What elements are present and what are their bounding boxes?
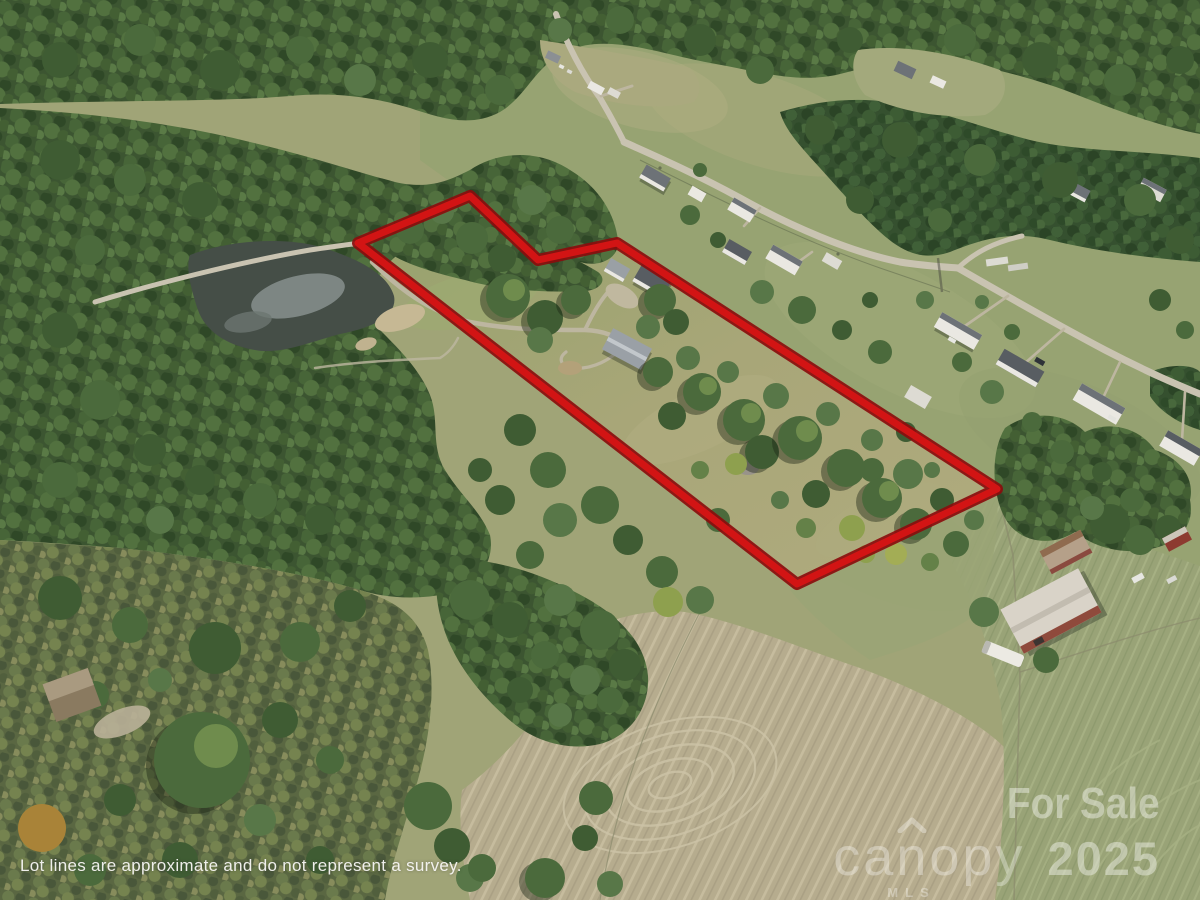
aerial-listing-photo: Lot lines are approximate and do not rep… bbox=[0, 0, 1200, 900]
dirt-patch bbox=[558, 361, 582, 375]
aerial-scene bbox=[0, 0, 1200, 900]
disclaimer-text: Lot lines are approximate and do not rep… bbox=[20, 856, 462, 876]
